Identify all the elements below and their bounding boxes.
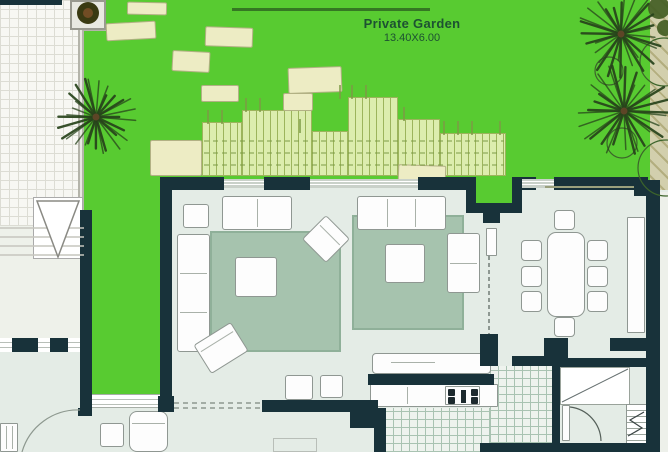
floor-plan: Private Garden 13.40X6.00 [0,0,668,452]
stepping-stone [127,2,167,16]
garden-wall-line [78,0,84,212]
dining-chair [521,240,542,261]
side-table [183,204,209,228]
window-mullion [12,338,38,352]
stepping-stone [106,21,157,42]
door-leaf [562,405,570,441]
sideboard [627,217,645,333]
loveseat [447,233,480,293]
garden-size-label: 13.40X6.00 [312,32,512,46]
wall [368,374,494,385]
sofa-three-seat [357,196,446,230]
planter-box [70,0,106,30]
stepping-stone [283,93,313,111]
ramp [33,197,83,259]
stepping-stone [205,26,254,48]
stepping-stone [201,85,239,102]
wall [262,400,352,412]
kitchen-tile-floor [377,408,490,452]
wall [610,338,648,351]
boundary-wall-top [0,0,62,5]
bar-stool [285,375,313,400]
wall [552,367,560,443]
wall [374,408,386,452]
stepping-stone [171,50,210,73]
bar-counter [372,353,491,374]
low-cabinet [273,438,317,452]
wall [480,334,498,366]
cooktop [445,386,480,405]
sofa-three-seat [177,234,210,352]
window [522,179,554,188]
wall [512,177,522,213]
wall [480,443,660,452]
dining-chair [554,317,575,337]
pergola-deck [440,133,506,176]
storage-room [560,367,630,405]
dining-chair [587,240,608,261]
coffee-table [235,257,277,297]
wall [78,408,92,416]
paved-driveway [0,0,84,226]
bar-stool [320,375,343,398]
window-mullion [50,338,68,352]
dining-chair [554,210,575,230]
dining-chair [521,291,542,312]
garden-label-group: Private Garden 13.40X6.00 [312,16,512,46]
wall-right-outer [646,192,660,452]
garden-side-strip [84,178,160,396]
dining-chair [521,266,542,287]
dining-table [547,232,585,317]
wall [264,177,310,190]
garden-label: Private Garden [312,16,512,32]
garden-bench [150,140,202,176]
opening-dashes [174,403,260,408]
wall-left-outer [80,210,92,416]
armchair [129,411,168,452]
garden-edge-line [232,8,430,11]
wall [158,396,174,412]
coffee-table [385,244,425,283]
sliding-door [224,179,264,188]
wall [418,177,468,190]
pergola-deck [242,110,312,176]
staircase [626,404,648,444]
sofa-two-seat [222,196,292,230]
stepping-stone [288,66,343,94]
pergola-deck [348,97,398,176]
dining-chair [587,291,608,312]
pergola-deck [202,122,242,176]
wall [160,177,172,399]
dining-chair [587,266,608,287]
side-path [650,0,668,190]
door-arc [22,410,80,452]
sliding-door [310,179,418,188]
door-leaf [486,228,497,256]
wall [552,358,648,367]
wall [483,213,500,223]
kitchen-tile-floor [490,366,556,443]
side-table [100,423,124,447]
door-arc [570,407,601,441]
bath-fixture [0,423,18,452]
garden-window-sill [88,394,162,408]
